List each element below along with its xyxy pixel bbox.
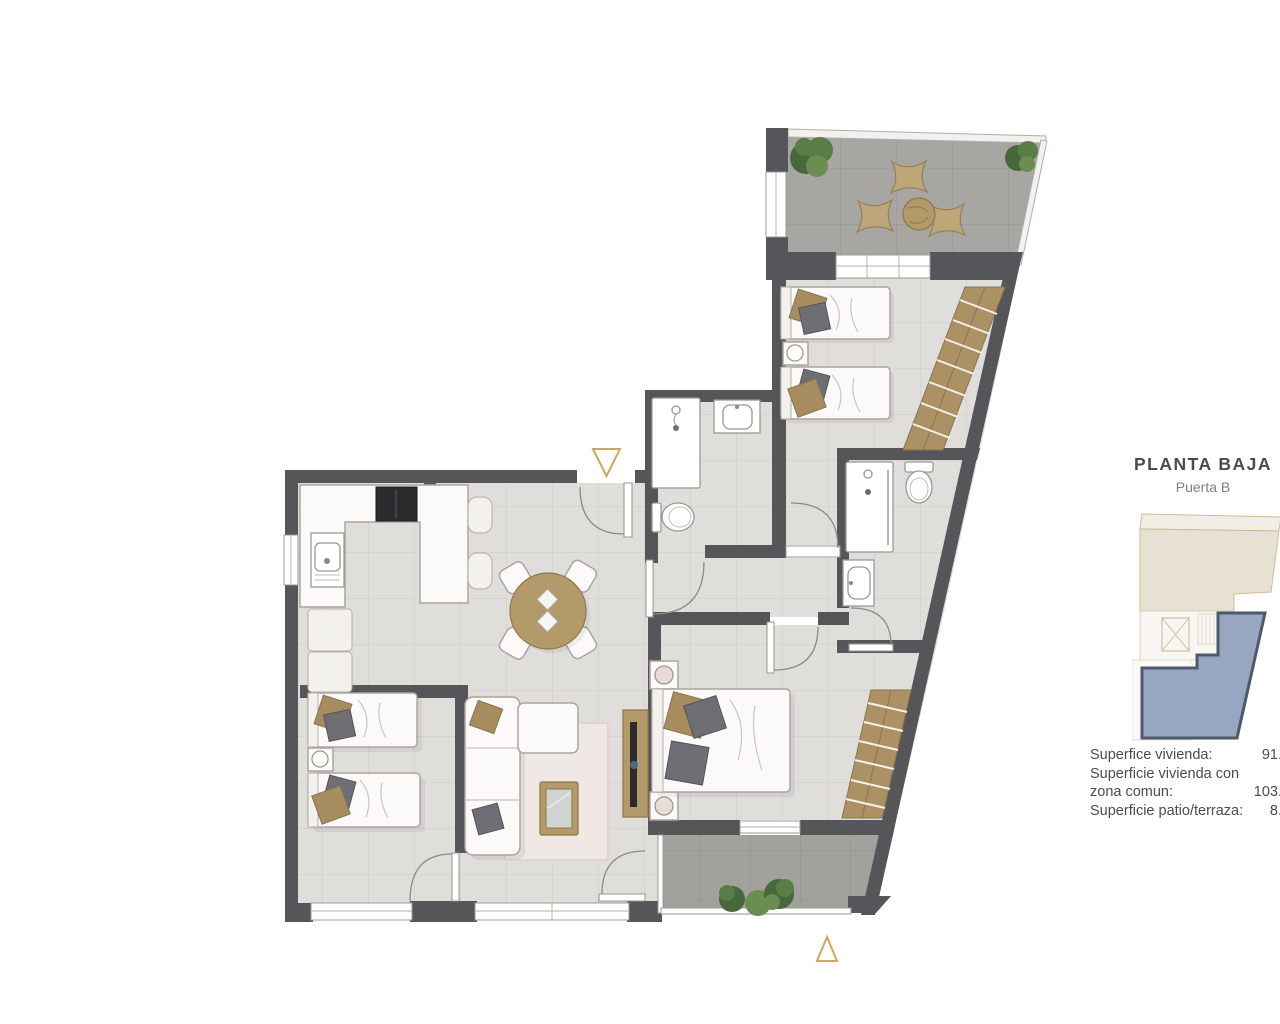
title-block: PLANTA BAJA Puerta B — [1124, 454, 1280, 495]
bar-stool — [468, 497, 492, 533]
nightstand — [650, 661, 678, 689]
area-value: 8. — [1270, 802, 1280, 821]
area-row-comun-label: Superficie vivienda con — [1090, 765, 1280, 784]
window-living — [475, 903, 629, 920]
inset-building-block — [1140, 529, 1279, 611]
cooktop — [376, 487, 417, 521]
area-label: Superficie patio/terraza: — [1090, 802, 1243, 821]
page-title: PLANTA BAJA — [1124, 454, 1280, 475]
floorplan-page: { "header": { "title": "PLANTA BAJA", "s… — [0, 0, 1280, 1024]
single-bed — [781, 287, 894, 343]
area-value: 91. — [1262, 746, 1280, 765]
tv-unit — [623, 710, 648, 817]
window-terrace-side — [766, 172, 786, 237]
window-master — [740, 821, 800, 833]
fridge — [308, 609, 352, 692]
window-kitchen — [284, 535, 298, 585]
surface-areas: Superfice vivienda: 91. Superficie vivie… — [1090, 746, 1280, 820]
area-value: 103. — [1254, 783, 1280, 802]
inset-neighbor-strip — [1140, 514, 1280, 531]
area-label: zona comun: — [1090, 783, 1173, 802]
key-plan-svg — [1132, 512, 1280, 744]
nightstand — [308, 748, 333, 771]
entrance-marker-top-icon — [593, 449, 620, 476]
toilet — [652, 503, 694, 532]
kitchen-sink — [311, 533, 344, 587]
window-bedroom2 — [311, 903, 412, 920]
single-bed — [781, 367, 894, 423]
shower — [846, 462, 893, 552]
nightstand — [783, 342, 808, 365]
page-subtitle: Puerta B — [1124, 479, 1280, 495]
toilet — [905, 462, 933, 503]
single-bed — [308, 693, 422, 752]
key-plan-inset — [1132, 512, 1280, 744]
dining — [497, 558, 598, 661]
area-row-patio: Superficie patio/terraza: 8. — [1090, 802, 1280, 821]
coffee-table — [540, 782, 578, 835]
terrace-table — [903, 198, 935, 230]
entrance-marker-bottom-icon — [817, 937, 837, 961]
bar-stool — [468, 553, 492, 589]
area-row-comun-value: zona comun: 103. — [1090, 783, 1280, 802]
floor-plan — [0, 0, 1280, 1024]
double-bed — [652, 689, 795, 797]
shower — [652, 398, 700, 488]
washbasin — [843, 560, 874, 606]
area-label: Superficie vivienda con — [1090, 765, 1239, 784]
area-label: Superfice vivienda: — [1090, 746, 1213, 765]
window-terrace-door — [836, 255, 930, 278]
area-row-vivienda: Superfice vivienda: 91. — [1090, 746, 1280, 765]
washbasin — [714, 400, 760, 433]
single-bed — [308, 773, 425, 832]
